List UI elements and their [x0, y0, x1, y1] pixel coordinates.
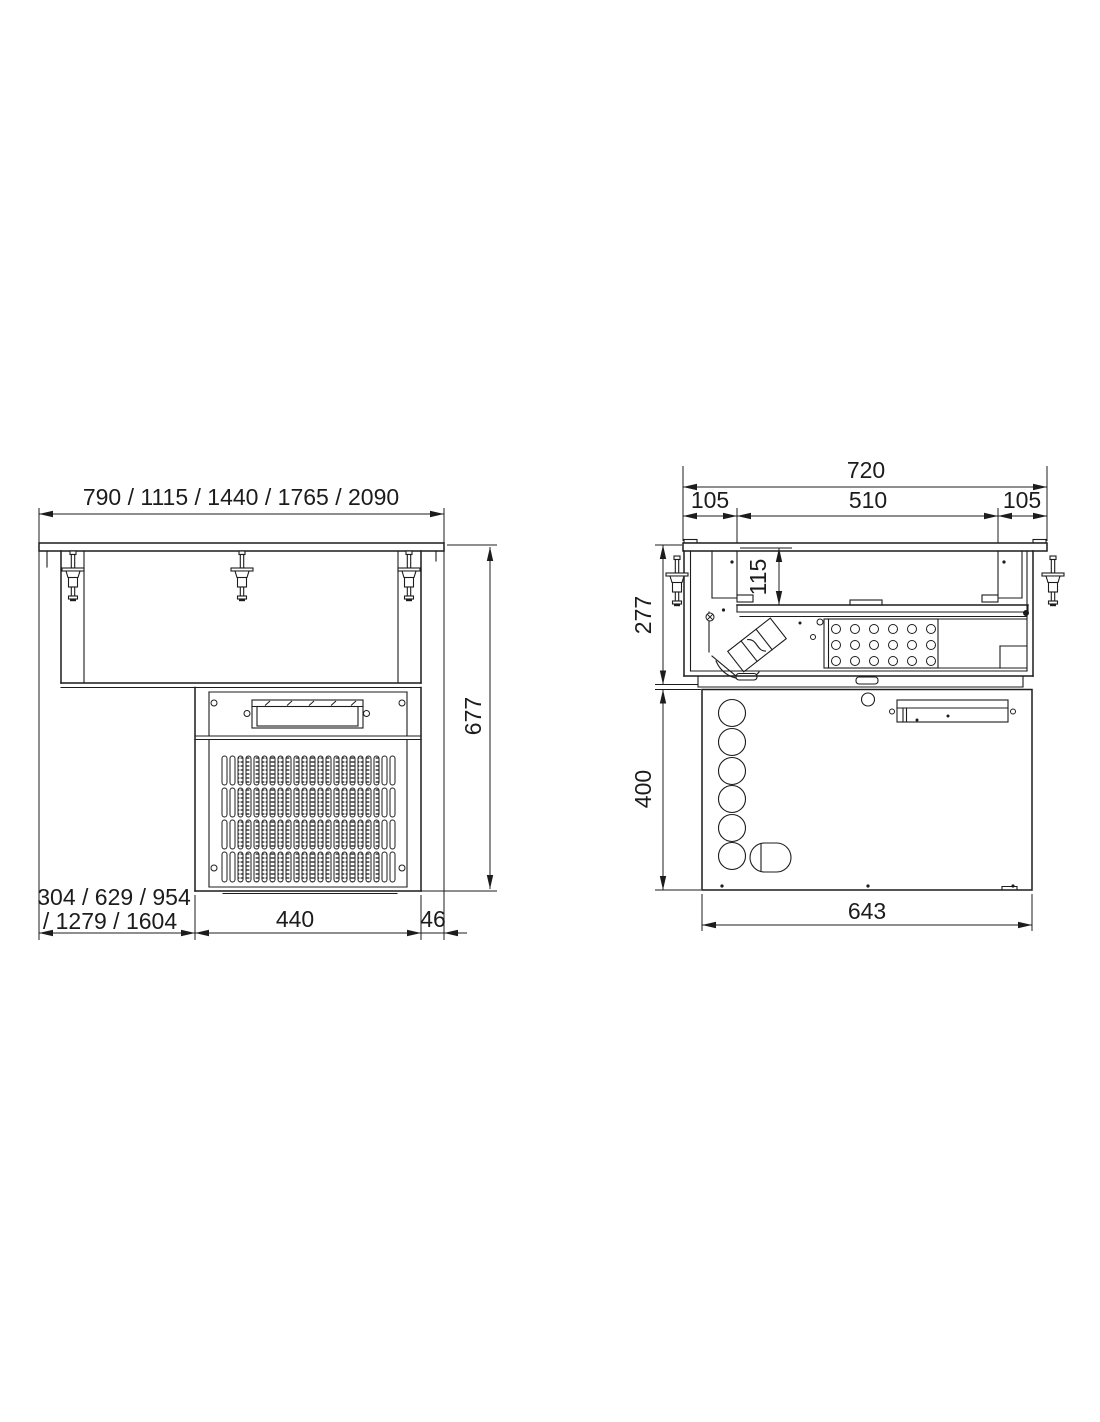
- grille-slat: [246, 852, 251, 882]
- perforated-plate: [824, 619, 938, 668]
- grille-slat: [278, 820, 283, 849]
- grille-slat: [254, 788, 259, 817]
- grille-slat: [326, 756, 331, 785]
- grille-slat: [294, 756, 299, 785]
- side-flange: [683, 540, 1047, 552]
- grille-slat: [310, 756, 315, 785]
- side-base-depth-label: 643: [848, 898, 886, 924]
- grille-slat: [294, 852, 299, 882]
- technical-drawing-canvas: 790 / 1115 / 1440 / 1765 / 2090: [0, 0, 1100, 1422]
- grille-slat: [350, 788, 355, 817]
- grille-slat: [286, 852, 291, 882]
- grille-slat: [390, 756, 395, 785]
- mounting-clamp-icon: [398, 551, 420, 601]
- knockout-circle: [719, 786, 746, 813]
- perforation-hole: [870, 625, 879, 634]
- grille-slat: [238, 820, 243, 849]
- perforation-hole: [927, 625, 936, 634]
- dim-front-width-options: 790 / 1115 / 1440 / 1765 / 2090: [39, 484, 444, 517]
- grille-slat: [302, 820, 307, 849]
- knockout-circle: [719, 700, 746, 727]
- perforation-hole: [832, 625, 841, 634]
- grille-slat: [302, 756, 307, 785]
- perforation-hole: [851, 625, 860, 634]
- grille-slat: [334, 788, 339, 817]
- dim-side-total-depth: 720: [683, 457, 1047, 490]
- grille-slat: [342, 788, 347, 817]
- grille-slat: [374, 820, 379, 849]
- perforation-hole: [851, 657, 860, 666]
- grille-slat: [374, 788, 379, 817]
- front-width-options-label: 790 / 1115 / 1440 / 1765 / 2090: [83, 484, 399, 510]
- grille-slat: [270, 756, 275, 785]
- grille-slat: [358, 788, 363, 817]
- grille-slat: [350, 756, 355, 785]
- grille-slat: [222, 852, 227, 882]
- grille-slat: [382, 756, 387, 785]
- grille-slat: [238, 788, 243, 817]
- perforation-hole: [832, 641, 841, 650]
- dim-side-margins: 105 510 105: [683, 487, 1047, 519]
- front-height-label: 677: [460, 697, 486, 735]
- grille-slat: [294, 788, 299, 817]
- grille-slat: [358, 756, 363, 785]
- grille-slat: [270, 852, 275, 882]
- grille-slat: [342, 756, 347, 785]
- grille-slat: [334, 756, 339, 785]
- grille-slat: [278, 756, 283, 785]
- grille-slat: [390, 852, 395, 882]
- grille-slat: [254, 756, 259, 785]
- grille-slat: [254, 820, 259, 849]
- side-upper-section: [684, 551, 1033, 687]
- grille-slat: [390, 788, 395, 817]
- grille-slat: [238, 852, 243, 882]
- side-view: 720 105 510 105: [630, 457, 1064, 931]
- perforation-hole: [927, 641, 936, 650]
- grille-slat: [302, 852, 307, 882]
- grille-slat: [222, 756, 227, 785]
- grille-slat: [342, 852, 347, 882]
- grille-slat: [366, 788, 371, 817]
- grille-slat: [286, 756, 291, 785]
- grille-slat: [358, 852, 363, 882]
- grille-slat: [310, 788, 315, 817]
- grille-slat: [270, 788, 275, 817]
- side-front-flange-label: 105: [691, 487, 729, 513]
- grille-slat: [366, 852, 371, 882]
- grille-slat: [374, 852, 379, 882]
- perforation-hole: [927, 657, 936, 666]
- fan-assembly: [709, 612, 786, 680]
- grille-slat: [350, 852, 355, 882]
- grille-slat: [390, 820, 395, 849]
- grille-slat: [342, 820, 347, 849]
- grille-slat: [254, 852, 259, 882]
- ventilation-grille: [209, 740, 407, 888]
- side-well-depth-label: 115: [745, 559, 771, 596]
- grille-slat: [326, 788, 331, 817]
- grille-slat: [262, 852, 267, 882]
- grille-slat: [262, 788, 267, 817]
- front-offset-options-line1: 304 / 629 / 954: [37, 884, 191, 910]
- grille-slat: [262, 756, 267, 785]
- grille-slat: [334, 852, 339, 882]
- dim-side-lower-height: 400: [630, 690, 666, 891]
- grille-slat: [230, 820, 235, 849]
- dim-side-upper-height: 277: [630, 545, 666, 685]
- perforation-hole: [889, 625, 898, 634]
- grille-slat: [302, 788, 307, 817]
- side-rear-flange-label: 105: [1003, 487, 1041, 513]
- side-total-depth-label: 720: [847, 457, 885, 483]
- grille-slat: [382, 820, 387, 849]
- grille-slat: [294, 820, 299, 849]
- grille-slat: [246, 820, 251, 849]
- mounting-clamp-icon: [1042, 556, 1064, 606]
- perforation-hole: [851, 641, 860, 650]
- grille-slat: [366, 756, 371, 785]
- side-upper-height-label: 277: [630, 596, 656, 634]
- dim-front-bottom: 304 / 629 / 954 / 1279 / 1604 440 46: [37, 884, 467, 936]
- front-view: 790 / 1115 / 1440 / 1765 / 2090: [37, 484, 497, 940]
- knockout-circle: [719, 815, 746, 842]
- knockout-circle: [719, 843, 746, 870]
- grille-slat: [366, 820, 371, 849]
- grille-slat: [310, 852, 315, 882]
- perforation-hole: [908, 657, 917, 666]
- grille-slat: [374, 756, 379, 785]
- side-lower-height-label: 400: [630, 770, 656, 808]
- grille-slat: [326, 820, 331, 849]
- side-well-opening-label: 510: [849, 487, 887, 513]
- grille-slat: [318, 756, 323, 785]
- grille-slat: [382, 788, 387, 817]
- knockout-circle: [719, 758, 746, 785]
- front-side-gap-label: 46: [420, 906, 446, 932]
- grille-slat: [230, 756, 235, 785]
- grille-slat: [278, 788, 283, 817]
- perforation-hole: [870, 657, 879, 666]
- mounting-clamp-icon: [231, 551, 253, 601]
- front-unit-width-label: 440: [276, 906, 314, 932]
- grille-slat: [318, 788, 323, 817]
- perforation-hole: [908, 625, 917, 634]
- perforation-hole: [889, 657, 898, 666]
- connection-bracket: [890, 700, 1016, 722]
- grille-slat: [318, 852, 323, 882]
- lower-cabinet: [702, 690, 1032, 891]
- grille-slat: [270, 820, 275, 849]
- grille-slat: [238, 756, 243, 785]
- mounting-clamp-icon: [62, 551, 84, 601]
- grille-slat: [230, 788, 235, 817]
- grille-slat: [222, 820, 227, 849]
- grille-slat: [230, 852, 235, 882]
- dim-front-height: 677: [460, 547, 493, 889]
- grille-slat: [278, 852, 283, 882]
- grille-slat: [358, 820, 363, 849]
- perforation-hole: [889, 641, 898, 650]
- grille-slat: [246, 788, 251, 817]
- grille-slat: [382, 852, 387, 882]
- grille-slat: [334, 820, 339, 849]
- grille-slat: [246, 756, 251, 785]
- grille-slat: [310, 820, 315, 849]
- grille-slat: [262, 820, 267, 849]
- grille-slat: [318, 820, 323, 849]
- front-offset-options-line2: / 1279 / 1604: [43, 908, 177, 934]
- grille-slat: [286, 788, 291, 817]
- perforation-hole: [908, 641, 917, 650]
- knockout-circle: [719, 729, 746, 756]
- grille-slat: [286, 820, 291, 849]
- condensing-unit: [195, 688, 421, 894]
- dim-side-base-depth: 643: [702, 898, 1032, 928]
- grille-slat: [222, 788, 227, 817]
- perforation-hole: [832, 657, 841, 666]
- perforation-hole: [870, 641, 879, 650]
- grille-slat: [326, 852, 331, 882]
- air-intake-slot: [252, 700, 363, 728]
- grille-slat: [350, 820, 355, 849]
